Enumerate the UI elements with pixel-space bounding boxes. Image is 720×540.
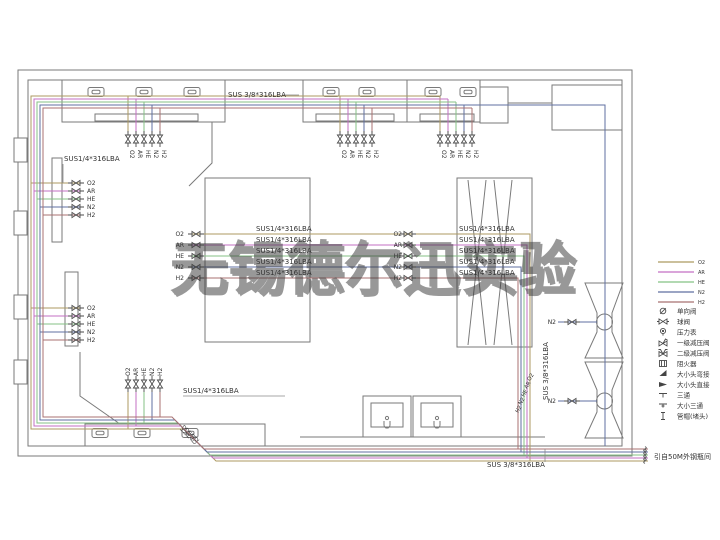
gas-tag: O2 [128, 150, 135, 159]
reducing-tee-icon [659, 404, 667, 408]
window-symbol [14, 138, 27, 162]
legend-gas-code: HE [698, 280, 705, 286]
piping-floor-plan: SUS 3/8*316LBA SUS1/4*316LBA SUS1/4*316L… [0, 0, 720, 540]
gas-tag: HE [87, 321, 96, 328]
gas-tag: O2 [125, 367, 132, 376]
top-right-cabinets [480, 85, 622, 130]
source-note: 引自50M外钢瓶间 [654, 452, 711, 461]
watermark-text: 无锡德尔迅实验 [170, 235, 576, 303]
gas-tag: N2 [149, 368, 156, 376]
gas-tag: O2 [527, 373, 536, 383]
right-process-units [585, 283, 623, 438]
legend-item-label: 压力表 [677, 328, 697, 337]
legend-gas-code: O2 [698, 260, 705, 266]
pressure-gauge-icon [660, 328, 665, 335]
tee-icon [659, 394, 667, 398]
legend-item-label: 球阀 [677, 317, 690, 326]
pipe-size-label: SUS1/4*316LBA [183, 387, 239, 395]
sink-right [413, 396, 461, 437]
legend-item-label: 单向阀 [677, 307, 697, 316]
gas-tag: H2 [87, 337, 96, 344]
top-bench-right [303, 80, 480, 122]
pipe-size-label: SUS1/4*316LBA [256, 225, 312, 233]
gas-tag: N2 [87, 329, 95, 336]
pipe-size-label: SUS1/4*316LBA [459, 225, 515, 233]
legend-item-label: 二级减压阀 [677, 349, 710, 358]
gas-tag: HE [141, 367, 148, 376]
gas-tag: AR [136, 150, 143, 158]
gas-tag: O2 [440, 150, 447, 159]
watermark: 无锡德尔迅实验 无锡德尔迅实验 [170, 235, 578, 305]
pipe-size-label: SUS 3/8*316LBA [487, 461, 545, 469]
flame-arrester-icon [660, 361, 667, 367]
legend-item-label: 一级减压阀 [677, 338, 710, 347]
legend: O2 AR HE N2 H2 单向阀 球阀 压力表 一级减压阀 二级减压阀 阻火… [657, 260, 710, 421]
gas-tag: AR [133, 368, 140, 376]
gas-tag: AR [348, 150, 355, 158]
pipe-cap-icon [661, 413, 665, 420]
check-valve-icon [660, 308, 666, 314]
gas-tag: O2 [340, 150, 347, 159]
gas-tag: H2 [157, 367, 164, 376]
sink-left [363, 396, 411, 437]
gas-tag: HE [144, 150, 151, 159]
gas-tag: H2 [160, 150, 167, 159]
pipe-size-label-vertical: SUS 3/8*316LBA [542, 342, 550, 400]
pipe-size-label: SUS 3/8*316LBA [228, 91, 286, 99]
window-symbol [14, 360, 27, 384]
gas-tag: O2 [87, 305, 96, 312]
gas-tag: N2 [364, 150, 371, 158]
legend-gas-code: N2 [698, 290, 705, 296]
legend-item-label: 阻火器 [677, 359, 697, 368]
regulator-single-icon [659, 339, 668, 346]
legend-item-label: 大小头直接 [677, 380, 710, 389]
reducer-straight-icon [659, 382, 667, 387]
gas-tag: N2 [464, 150, 471, 158]
gas-tag: HE [356, 150, 363, 159]
legend-item-label: 大小头弯接 [677, 370, 710, 379]
legend-item-label: 三通 [677, 391, 691, 400]
gas-tag: AR [448, 150, 455, 158]
legend-item-label: 管帽(堵头) [677, 412, 708, 421]
window-symbol [14, 211, 27, 235]
gas-tag: N2 [548, 319, 556, 326]
gas-tag: N2 [152, 150, 159, 158]
gas-tag: N2 [548, 398, 556, 405]
window-symbol [14, 295, 27, 319]
gas-tag: H2 [372, 150, 379, 159]
legend-gas-code: AR [698, 270, 705, 276]
gas-tag: HE [456, 150, 463, 159]
gas-tag: HE [87, 196, 96, 203]
legend-gas-code: H2 [698, 300, 705, 306]
gas-tag: AR [87, 313, 95, 320]
gas-tag: O2 [87, 180, 96, 187]
gas-tag: H2 [87, 212, 96, 219]
regulator-double-icon [659, 350, 668, 357]
gas-tag: H2 [472, 150, 479, 159]
gas-tag: N2 [87, 204, 95, 211]
legend-item-label: 大小三通 [677, 401, 704, 410]
pipe-size-label: SUS1/4*316LBA [64, 155, 120, 163]
gas-tag: AR [87, 188, 95, 195]
ball-valve-icon [657, 319, 669, 324]
drawing-canvas: SUS 3/8*316LBA SUS1/4*316LBA SUS1/4*316L… [0, 0, 720, 540]
bottom-bench [85, 424, 545, 446]
reducer-elbow-icon [660, 370, 667, 376]
